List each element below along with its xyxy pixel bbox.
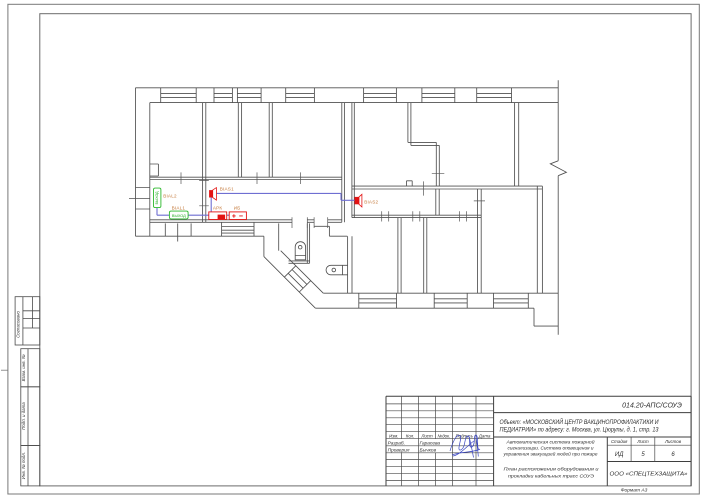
svg-text:6: 6 xyxy=(671,452,675,458)
svg-text:Изм.: Изм. xyxy=(389,433,398,438)
svg-text:управления эвакуацией людей пр: управления эвакуацией людей при пожаре xyxy=(502,450,598,456)
svg-text:сигнализации. Система оповещен: сигнализации. Система оповещения и xyxy=(508,445,595,450)
svg-text:Кол.: Кол. xyxy=(406,433,415,438)
svg-text:Проверил: Проверил xyxy=(388,448,410,454)
svg-text:Автоматическая система пожарно: Автоматическая система пожарной xyxy=(505,438,595,444)
svg-text:BIAS2: BIAS2 xyxy=(364,199,378,204)
svg-text:ООО «СПЕЦТЕХЗАЩИТА»: ООО «СПЕЦТЕХЗАЩИТА» xyxy=(610,471,688,477)
svg-text:прокладки кабельных трасс СОУЭ: прокладки кабельных трасс СОУЭ xyxy=(508,474,595,480)
svg-text:Стадия: Стадия xyxy=(611,439,628,444)
svg-text:ВЫХОД: ВЫХОД xyxy=(155,191,159,205)
svg-text:Дата: Дата xyxy=(478,433,491,438)
svg-text:Лист: Лист xyxy=(636,439,649,444)
svg-text:5: 5 xyxy=(641,452,645,458)
svg-text:Согласовано: Согласовано xyxy=(16,311,21,338)
svg-text:Бычков: Бычков xyxy=(420,448,437,454)
svg-text:Подпись: Подпись xyxy=(455,433,473,438)
svg-text:Инв. № подл.: Инв. № подл. xyxy=(21,452,26,479)
svg-text:Формат А3: Формат А3 xyxy=(621,488,648,494)
svg-text:ИД: ИД xyxy=(615,452,624,458)
svg-text:BIAS1: BIAS1 xyxy=(220,186,234,191)
svg-text:Гарасева: Гарасева xyxy=(420,440,441,446)
svg-text:Разраб.: Разраб. xyxy=(388,440,405,446)
svg-text:014.20-АПС/СОУЭ: 014.20-АПС/СОУЭ xyxy=(622,402,682,409)
svg-text:ВЫХОД: ВЫХОД xyxy=(172,214,186,218)
svg-text:АРК: АРК xyxy=(213,205,223,210)
svg-text:BIAL1: BIAL1 xyxy=(172,205,186,210)
svg-text:ИБ: ИБ xyxy=(234,205,241,210)
svg-text:Взам. инв. №: Взам. инв. № xyxy=(21,354,26,381)
svg-text:№док.: №док. xyxy=(437,433,450,438)
svg-text:ПЕДИАТРИИ» по адресу: г. Москв: ПЕДИАТРИИ» по адресу: г. Москва, ул. Цюр… xyxy=(500,427,660,433)
svg-text:BIAL2: BIAL2 xyxy=(163,194,177,199)
svg-text:Листов: Листов xyxy=(664,439,682,444)
svg-text:Объект: «МОСКОВСКИЙ ЦЕНТР ВАКЦ: Объект: «МОСКОВСКИЙ ЦЕНТР ВАКЦИНОПРОФИЛА… xyxy=(500,418,660,426)
svg-text:План расположения оборудования: План расположения оборудования и xyxy=(504,467,599,473)
svg-text:Подп. и дата: Подп. и дата xyxy=(21,402,26,430)
svg-text:Лист: Лист xyxy=(420,433,433,438)
